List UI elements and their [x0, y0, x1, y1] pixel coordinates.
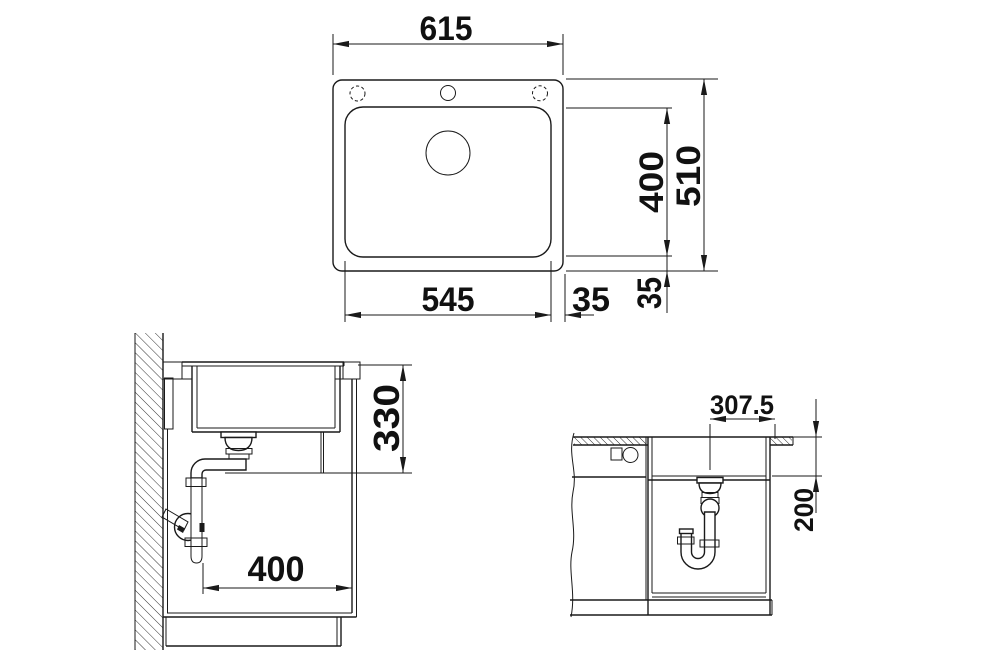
dim-depths: 400 510 35 — [566, 79, 718, 313]
side-view: 330 400 — [135, 333, 412, 650]
strainer-flange — [697, 478, 723, 484]
basin-outline — [345, 107, 551, 257]
outlet-cap — [680, 529, 694, 534]
dim-outlet-height: 330 — [225, 365, 412, 473]
drain-trap-front — [678, 478, 724, 570]
dim-label-615: 615 — [420, 10, 473, 48]
elbow-pipe — [191, 459, 246, 478]
dim-label-510: 510 — [670, 145, 708, 207]
tap-hole-center — [441, 86, 456, 101]
technical-drawing: 615 545 35 400 510 35 — [0, 0, 1000, 659]
mounting-rail — [165, 378, 174, 429]
drain-hole — [426, 131, 470, 175]
dim-label-200: 200 — [789, 488, 819, 532]
dim-label-330: 330 — [366, 384, 407, 452]
sink-cabinet-front — [570, 437, 772, 615]
dim-basin-width: 545 35 — [345, 261, 610, 322]
drain-trap-side — [162, 432, 256, 563]
counter-cut-right — [343, 362, 360, 379]
strainer-dome — [699, 483, 721, 494]
break-line — [571, 433, 575, 617]
tap-hole-right-optional — [533, 86, 548, 101]
top-view: 615 545 35 400 510 35 — [333, 10, 718, 322]
dim-label-35-bottom: 35 — [631, 277, 669, 309]
counter-cut-left — [163, 362, 182, 379]
technical-drawing-page: 615 545 35 400 510 35 — [0, 0, 1000, 659]
dim-bowl-depth: 200 — [772, 399, 822, 532]
counter-front — [573, 437, 793, 445]
adjacent-unit-front — [572, 445, 646, 600]
wall-hatch — [135, 333, 163, 650]
control-button-square — [611, 448, 622, 460]
dim-label-35-right: 35 — [572, 281, 610, 319]
strainer-coupling — [229, 454, 249, 459]
dim-label-307-5: 307.5 — [710, 390, 774, 420]
dim-label-400-basin-depth: 400 — [633, 151, 671, 213]
sink-section — [165, 362, 345, 473]
dim-label-400-cabinet: 400 — [248, 550, 305, 589]
dim-overall-width: 615 — [333, 10, 563, 75]
dim-label-545: 545 — [422, 281, 475, 319]
strainer-flange — [221, 432, 256, 438]
dim-cabinet-depth: 400 — [203, 550, 352, 594]
dim-drain-offset: 307.5 — [710, 390, 775, 470]
clamp-detail — [200, 523, 205, 532]
control-knob-circle — [623, 448, 638, 463]
front-view: 307.5 200 — [570, 390, 822, 617]
tap-hole-left-optional — [350, 86, 365, 101]
